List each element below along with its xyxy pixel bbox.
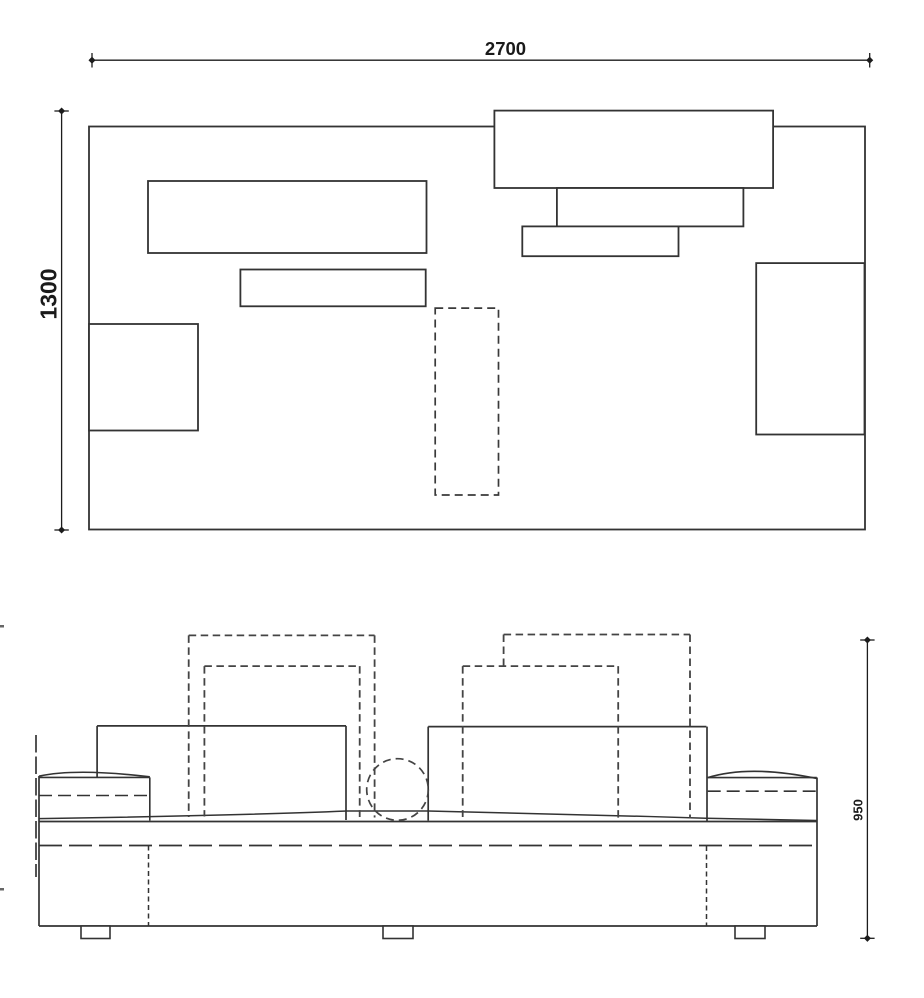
svg-text:950: 950 <box>851 799 866 821</box>
svg-text:1300: 1300 <box>36 268 62 319</box>
svg-text:2700: 2700 <box>485 38 526 59</box>
